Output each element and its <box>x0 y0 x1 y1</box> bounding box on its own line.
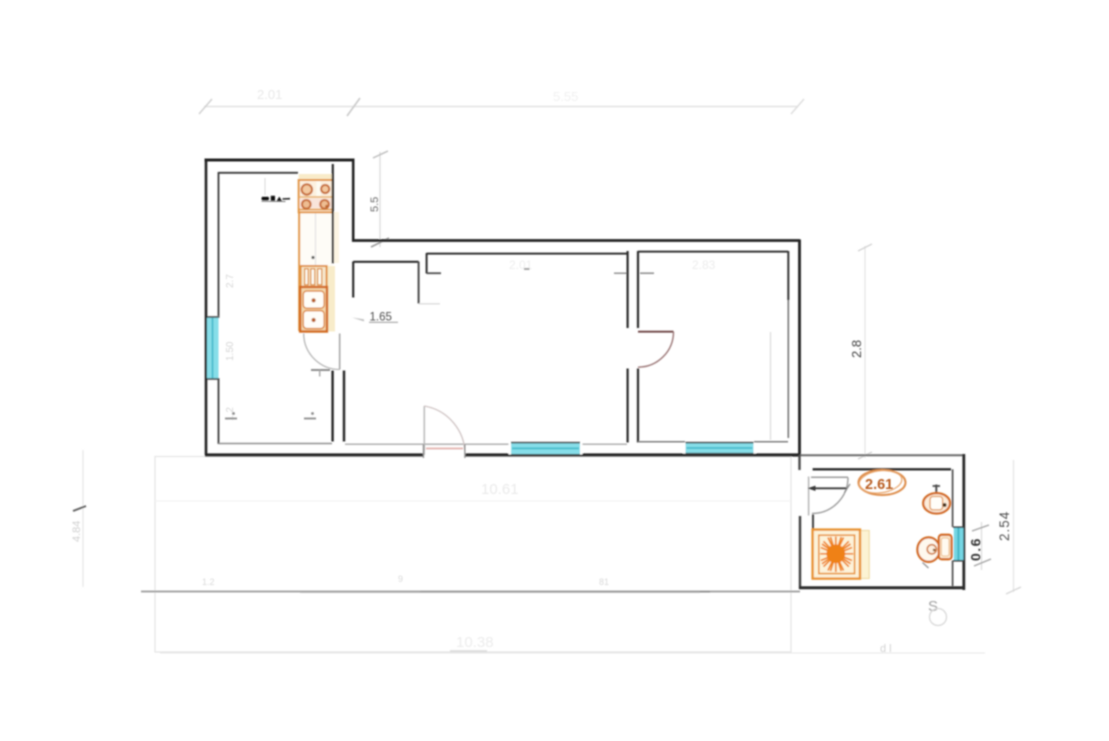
svg-text:0.6: 0.6 <box>968 537 984 561</box>
svg-text:1.2: 1.2 <box>202 577 215 587</box>
svg-text:2.83: 2.83 <box>692 258 716 272</box>
svg-text:9: 9 <box>398 574 403 584</box>
svg-text:81: 81 <box>599 577 609 587</box>
svg-text:2.7: 2.7 <box>225 274 236 288</box>
svg-text:2.8: 2.8 <box>849 340 864 358</box>
svg-text:S: S <box>928 598 938 615</box>
svg-text:10.61: 10.61 <box>481 481 519 498</box>
svg-text:2.54: 2.54 <box>997 511 1012 541</box>
svg-text:2.01: 2.01 <box>257 87 282 102</box>
svg-text:d l: d l <box>880 643 892 655</box>
svg-text:1.50: 1.50 <box>225 341 236 361</box>
svg-text:5.5: 5.5 <box>369 197 381 212</box>
svg-text:10.38: 10.38 <box>456 634 494 651</box>
svg-text:5.55: 5.55 <box>553 89 578 104</box>
svg-text:4.84: 4.84 <box>71 521 83 542</box>
